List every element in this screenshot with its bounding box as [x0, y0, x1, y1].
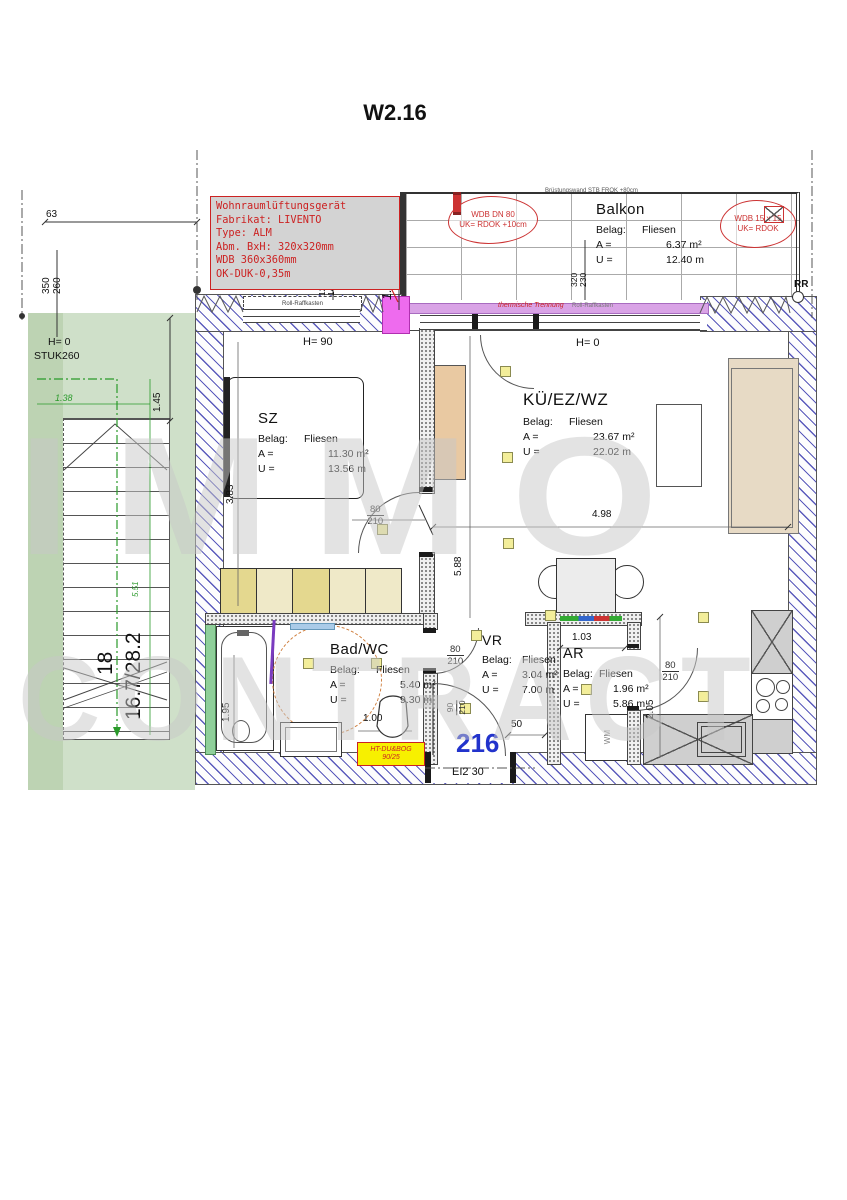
- kitchen-tall-cabinet: [751, 610, 793, 674]
- balcony-name: Balkon: [596, 201, 704, 218]
- dining-table: [556, 558, 616, 616]
- stair-area-note: 5.51: [131, 561, 140, 597]
- cooktop-burner: [775, 698, 788, 711]
- ar-belag-label: Belag:: [563, 667, 599, 682]
- ventilation-annotation-box: Wohnraumlüftungsgerät Fabrikat: LIVENTO …: [210, 196, 400, 290]
- stair-stuk-label: STUK260: [34, 350, 80, 362]
- door-height: 210: [447, 656, 463, 667]
- room-info-bad: Bad/WC Belag:Fliesen A =5.40 m² U =9.30 …: [330, 641, 436, 708]
- dim-350: 350: [41, 250, 52, 294]
- kue-belag-value: Fliesen: [569, 415, 603, 430]
- vr-perimeter-value: 7.00 m: [522, 683, 554, 698]
- ar-area-label: A =: [563, 682, 599, 697]
- vent-box-line4: Abm. BxH: 320x320mm: [216, 241, 394, 255]
- balcony-area-label: A =: [596, 238, 642, 253]
- cooktop-burner: [756, 699, 770, 713]
- stair-dim-green: 1.38: [55, 393, 73, 403]
- door-width: 90: [445, 700, 457, 715]
- room-info-ar: AR Belag:Fliesen A =1.96 m² U =5.86 m: [563, 646, 649, 712]
- sz-belag-label: Belag:: [258, 432, 304, 447]
- wardrobe-unit: [293, 569, 329, 614]
- window-kue: [420, 315, 700, 330]
- bad-area-value: 5.40 m²: [376, 678, 436, 693]
- sz-belag-value: Fliesen: [304, 432, 338, 447]
- kue-perimeter-value: 22.02 m: [569, 445, 631, 460]
- kue-height-note: H= 0: [576, 337, 600, 349]
- door-size-bad: 80 210: [447, 644, 464, 667]
- electrical-marker: [471, 630, 482, 641]
- window-sz: [243, 309, 360, 323]
- stair-dim-black: 1.45: [152, 370, 163, 412]
- duct-label-line2: 90/25: [382, 754, 400, 762]
- cooktop-burner: [776, 680, 790, 694]
- cloud-left-line2: UK= RDOK +10cm: [449, 220, 537, 230]
- stair-height-note: H= 0: [48, 336, 70, 348]
- door-arc-balcony: [480, 335, 534, 389]
- balcony-perimeter-label: U =: [596, 253, 642, 268]
- drain-symbol-icon: [453, 192, 461, 215]
- staircase-zone-shade: [28, 313, 63, 790]
- vr-area-value: 3.04 m²: [522, 668, 558, 683]
- kue-belag-label: Belag:: [523, 415, 569, 430]
- dim-230: 230: [578, 243, 588, 287]
- electrical-marker: [503, 538, 514, 549]
- dim-260: 260: [52, 250, 63, 294]
- door-size-entrance: 90 210: [445, 700, 468, 715]
- balcony-belag-label: Belag:: [596, 223, 642, 238]
- kue-area-value: 23.67 m²: [569, 430, 634, 445]
- balcony-parapet-note: Brüstungswand STB FROK +80cm: [545, 188, 638, 194]
- door-jamb: [419, 487, 433, 492]
- washing-machine: WM: [585, 714, 630, 761]
- electrical-marker: [698, 612, 709, 623]
- vr-belag-label: Belag:: [482, 653, 522, 668]
- wardrobe-row: [220, 568, 402, 615]
- floor-plan-page: W2.16 H= 0 STUK260 18 16.7/28.2 5.51 1.3…: [0, 0, 847, 1200]
- ar-belag-value: Fliesen: [599, 667, 633, 682]
- balcony-area-value: 6.37 m²: [642, 238, 702, 253]
- roll-shutter-label: Roll-Raffkasten: [282, 301, 323, 307]
- room-info-kue: KÜ/EZ/WZ Belag:Fliesen A =23.67 m² U =22…: [523, 390, 634, 460]
- bad-belag-value: Fliesen: [376, 663, 410, 678]
- dim-103: 1.03: [572, 632, 591, 643]
- vr-belag-value: Fliesen: [522, 653, 556, 668]
- door-jamb: [472, 314, 478, 329]
- bad-area-label: A =: [330, 678, 376, 693]
- kitchen-column-base: [751, 719, 793, 754]
- bathroom-green-strip: [205, 623, 216, 755]
- cloud-left-line1: WDB DN 80: [449, 210, 537, 220]
- vr-perimeter-label: U =: [482, 683, 522, 698]
- kue-perimeter-label: U =: [523, 445, 569, 460]
- cloud-right-line2: UK= RDOK: [721, 224, 795, 234]
- dim-383: 3.83: [225, 462, 236, 504]
- electrical-marker: [698, 691, 709, 702]
- door-jamb: [510, 752, 516, 783]
- vent-box-line3: Type: ALM: [216, 227, 394, 241]
- roll-shutter-label-2: Roll-Raffkasten: [572, 303, 613, 309]
- dim-63: 63: [46, 209, 57, 220]
- table-kue: [656, 404, 702, 487]
- ventilation-unit: [382, 296, 410, 334]
- vent-box-line2: Fabrikat: LIVENTO: [216, 214, 394, 228]
- balcony-perimeter-value: 12.40 m: [642, 253, 704, 268]
- ar-area-value: 1.96 m²: [599, 682, 649, 697]
- door-height: 210: [457, 700, 468, 714]
- door-width: 80: [447, 644, 464, 656]
- room-name-ar: AR: [563, 646, 649, 662]
- kitchen-sink-inner: [701, 726, 742, 753]
- bathtub-faucet-icon: [237, 630, 249, 636]
- sz-height-note: H= 90: [303, 336, 333, 348]
- partition-ar-right-lower: [627, 710, 641, 765]
- room-name-vr: VR: [482, 632, 558, 648]
- sz-area-value: 11.30 m²: [304, 447, 369, 462]
- door-height: 210: [662, 672, 678, 683]
- dim-195: 1.95: [221, 684, 232, 722]
- sz-area-label: A =: [258, 447, 304, 462]
- kue-area-label: A =: [523, 430, 569, 445]
- wardrobe-unit: [366, 569, 401, 614]
- vent-box-line5: WDB 360x360mm: [216, 254, 394, 268]
- door-width: 80: [662, 660, 679, 672]
- vent-box-line6: OK-DUK-0,35m: [216, 268, 394, 282]
- heating-strip: [560, 616, 622, 621]
- door-height: 210: [367, 516, 383, 527]
- stair-riser-count: 18: [94, 555, 118, 675]
- wdb-symbol-icon: [764, 206, 784, 223]
- sz-perimeter-value: 13.56 m: [304, 462, 366, 477]
- bad-belag-label: Belag:: [330, 663, 376, 678]
- electrical-marker: [303, 658, 314, 669]
- wardrobe-tan: [434, 365, 466, 480]
- room-name-kue: KÜ/EZ/WZ: [523, 390, 634, 410]
- wardrobe-unit: [221, 569, 257, 614]
- door-size-ar: 80 210: [662, 660, 679, 683]
- washing-machine-label: WM: [603, 730, 612, 744]
- entrance-fire-rating: EI2 30: [452, 766, 484, 778]
- vent-box-line1: Wohnraumlüftungsgerät: [216, 200, 394, 214]
- duct-label-line1: HT-DU&BOG: [370, 746, 411, 754]
- vr-area-label: A =: [482, 668, 522, 683]
- room-info-sz: SZ Belag:Fliesen A =11.30 m² U =13.56 m: [258, 410, 369, 477]
- apartment-number: 216: [456, 728, 499, 759]
- dim-588: 5.88: [453, 536, 464, 576]
- dim-50: 50: [511, 719, 522, 730]
- door-jamb: [425, 752, 431, 783]
- door-jamb: [423, 628, 436, 633]
- bad-perimeter-label: U =: [330, 693, 376, 708]
- room-name-sz: SZ: [258, 410, 369, 427]
- door-width: 80: [367, 504, 384, 516]
- bathtub-drain: [232, 720, 250, 742]
- door-jamb: [533, 314, 539, 329]
- door-size-sz: 80 210: [367, 504, 384, 527]
- thermal-break-label: thermische Trennung: [498, 302, 564, 309]
- room-name-bad: Bad/WC: [330, 641, 436, 658]
- door-jamb: [419, 552, 433, 557]
- wardrobe-unit: [257, 569, 293, 614]
- duct-box: HT-DU&BOG 90/25: [357, 742, 425, 766]
- rr-pipe-icon: [792, 291, 804, 303]
- electrical-marker: [500, 366, 511, 377]
- dim-100: 1.00: [363, 713, 382, 724]
- room-info-vr: VR Belag:Fliesen A =3.04 m² U =7.00 m: [482, 632, 558, 698]
- balcony-info: Balkon Belag:Fliesen A =6.37 m² U =12.40…: [596, 201, 704, 268]
- ar-perimeter-value: 5.86 m: [599, 697, 645, 712]
- cooktop-burner: [756, 678, 775, 697]
- dim-498: 4.98: [592, 509, 611, 520]
- partition-sz-kue-upper: [419, 328, 435, 494]
- wardrobe-unit: [330, 569, 366, 614]
- rr-label: RR: [794, 279, 808, 290]
- mirror: [290, 623, 335, 630]
- vanity-basin: [285, 727, 337, 752]
- sofa-inner: [731, 368, 793, 528]
- partition-sz-kue-lower: [419, 552, 435, 615]
- electrical-marker: [545, 610, 556, 621]
- balcony-belag-value: Fliesen: [642, 223, 676, 238]
- sz-perimeter-label: U =: [258, 462, 304, 477]
- electrical-marker: [502, 452, 513, 463]
- ar-perimeter-label: U =: [563, 697, 599, 712]
- page-title: W2.16: [300, 100, 490, 126]
- bad-perimeter-value: 9.30 m: [376, 693, 432, 708]
